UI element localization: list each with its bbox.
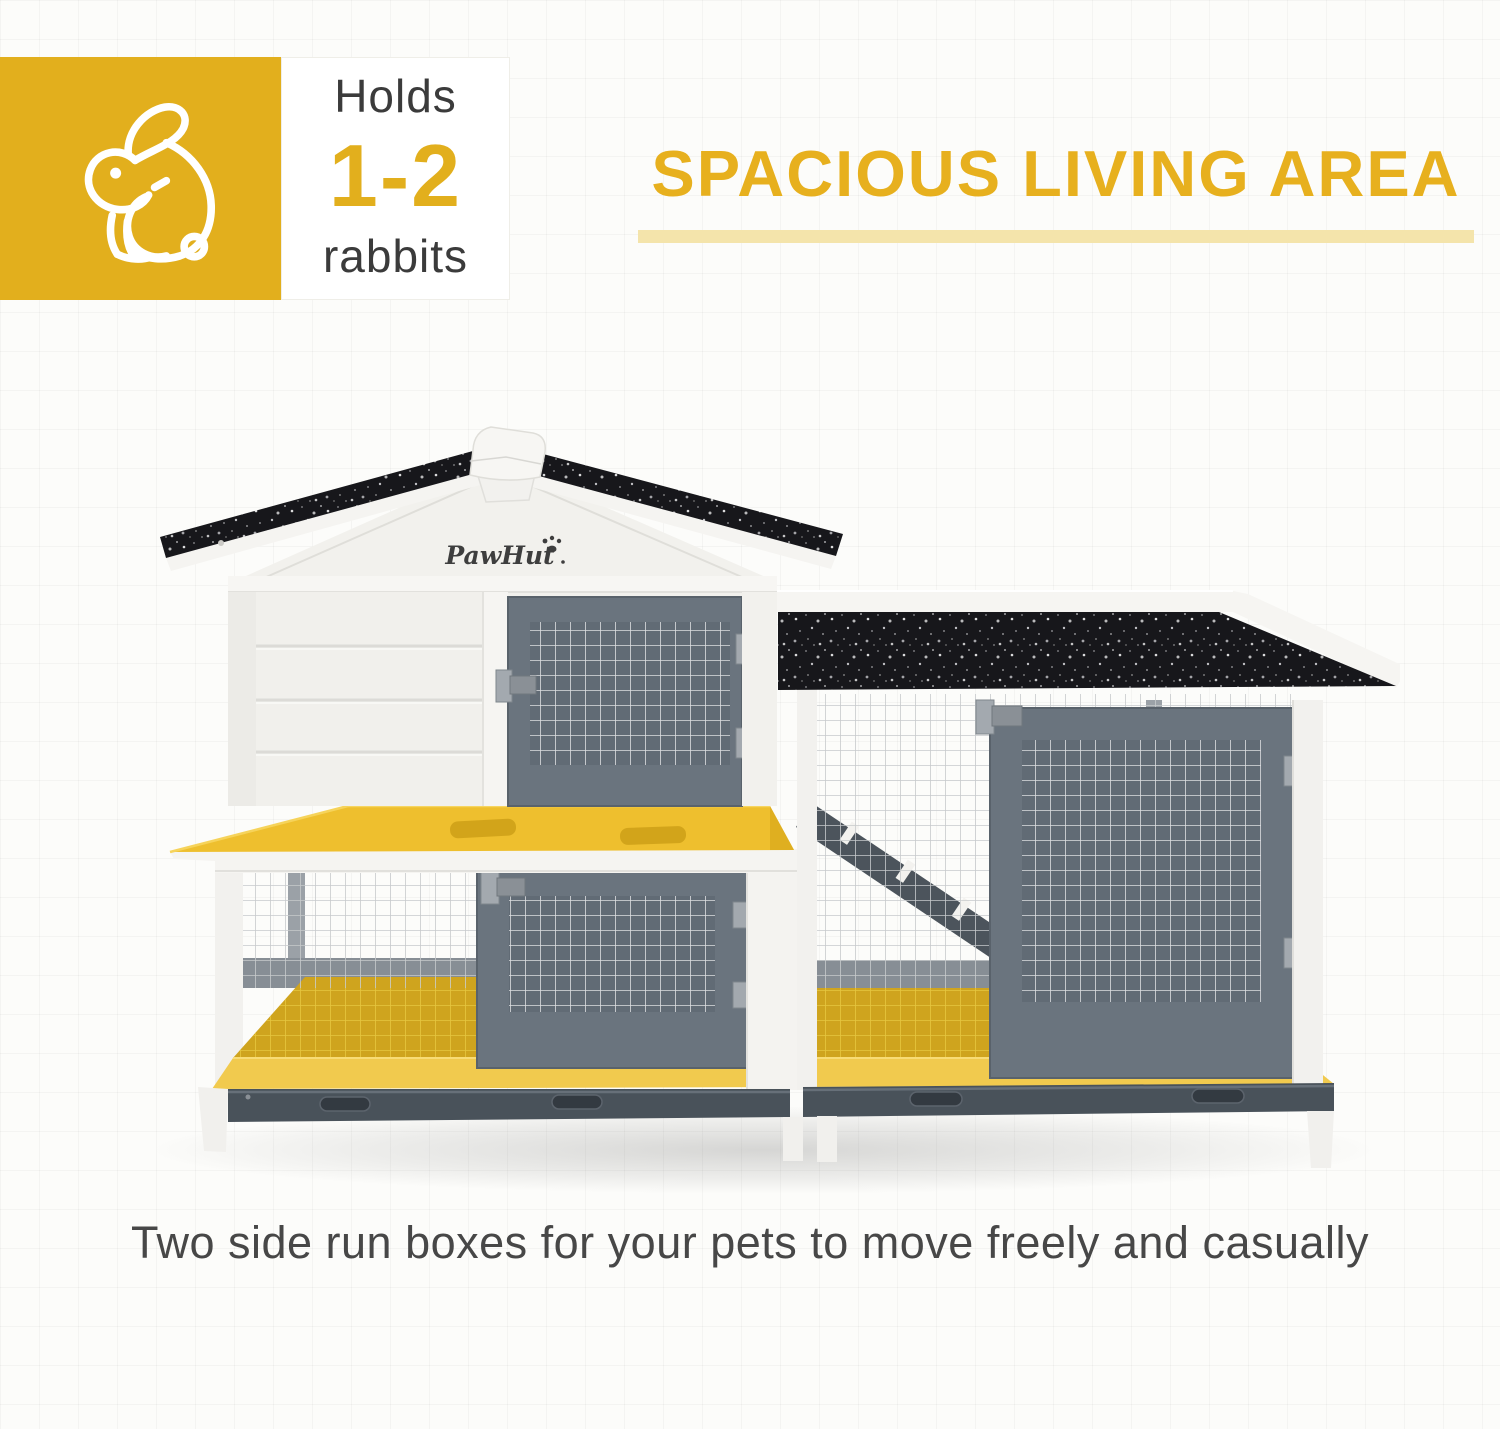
run-roof	[773, 591, 1400, 690]
headline-underline	[638, 230, 1474, 243]
lower-door-hinge-top	[733, 902, 747, 928]
caption-block: Two side run boxes for your pets to move…	[0, 1216, 1500, 1270]
siding-panel	[256, 592, 483, 806]
platform-rail	[215, 849, 797, 873]
leg-right	[1307, 1111, 1334, 1168]
capacity-badge: Holds 1-2 rabbits	[281, 57, 510, 300]
tray-right	[803, 1083, 1334, 1117]
page-title: SPACIOUS LIVING AREA	[620, 141, 1492, 206]
capacity-label: Holds	[334, 73, 457, 119]
leg-middle-left	[783, 1117, 803, 1161]
brand-logo-text: PawHut	[444, 541, 555, 570]
headline-block: SPACIOUS LIVING AREA	[620, 141, 1492, 243]
run-corner-post	[1293, 700, 1323, 1090]
upper-left-post	[228, 592, 256, 806]
upper-platform-highlight	[170, 806, 794, 852]
capacity-value: 1-2	[329, 134, 462, 218]
left-hutch-house: PawHut	[160, 427, 843, 1162]
tray-left	[228, 1089, 790, 1122]
capacity-badge-icon-tile	[0, 57, 281, 300]
rabbit-icon	[48, 86, 234, 272]
center-mullion	[747, 851, 797, 1090]
upper-door	[496, 597, 751, 806]
caption-text: Two side run boxes for your pets to move…	[0, 1216, 1500, 1270]
leg-middle-right	[817, 1116, 837, 1162]
capacity-unit: rabbits	[323, 233, 468, 279]
run-door	[976, 700, 1300, 1078]
lower-door-hinge-bottom	[733, 982, 747, 1008]
lower-door	[477, 868, 747, 1068]
upper-right-wall	[742, 592, 777, 806]
right-run-box	[773, 591, 1400, 1168]
product-image-rabbit-hutch: PawHut	[140, 410, 1400, 1210]
brand-logo: PawHut	[444, 536, 564, 570]
